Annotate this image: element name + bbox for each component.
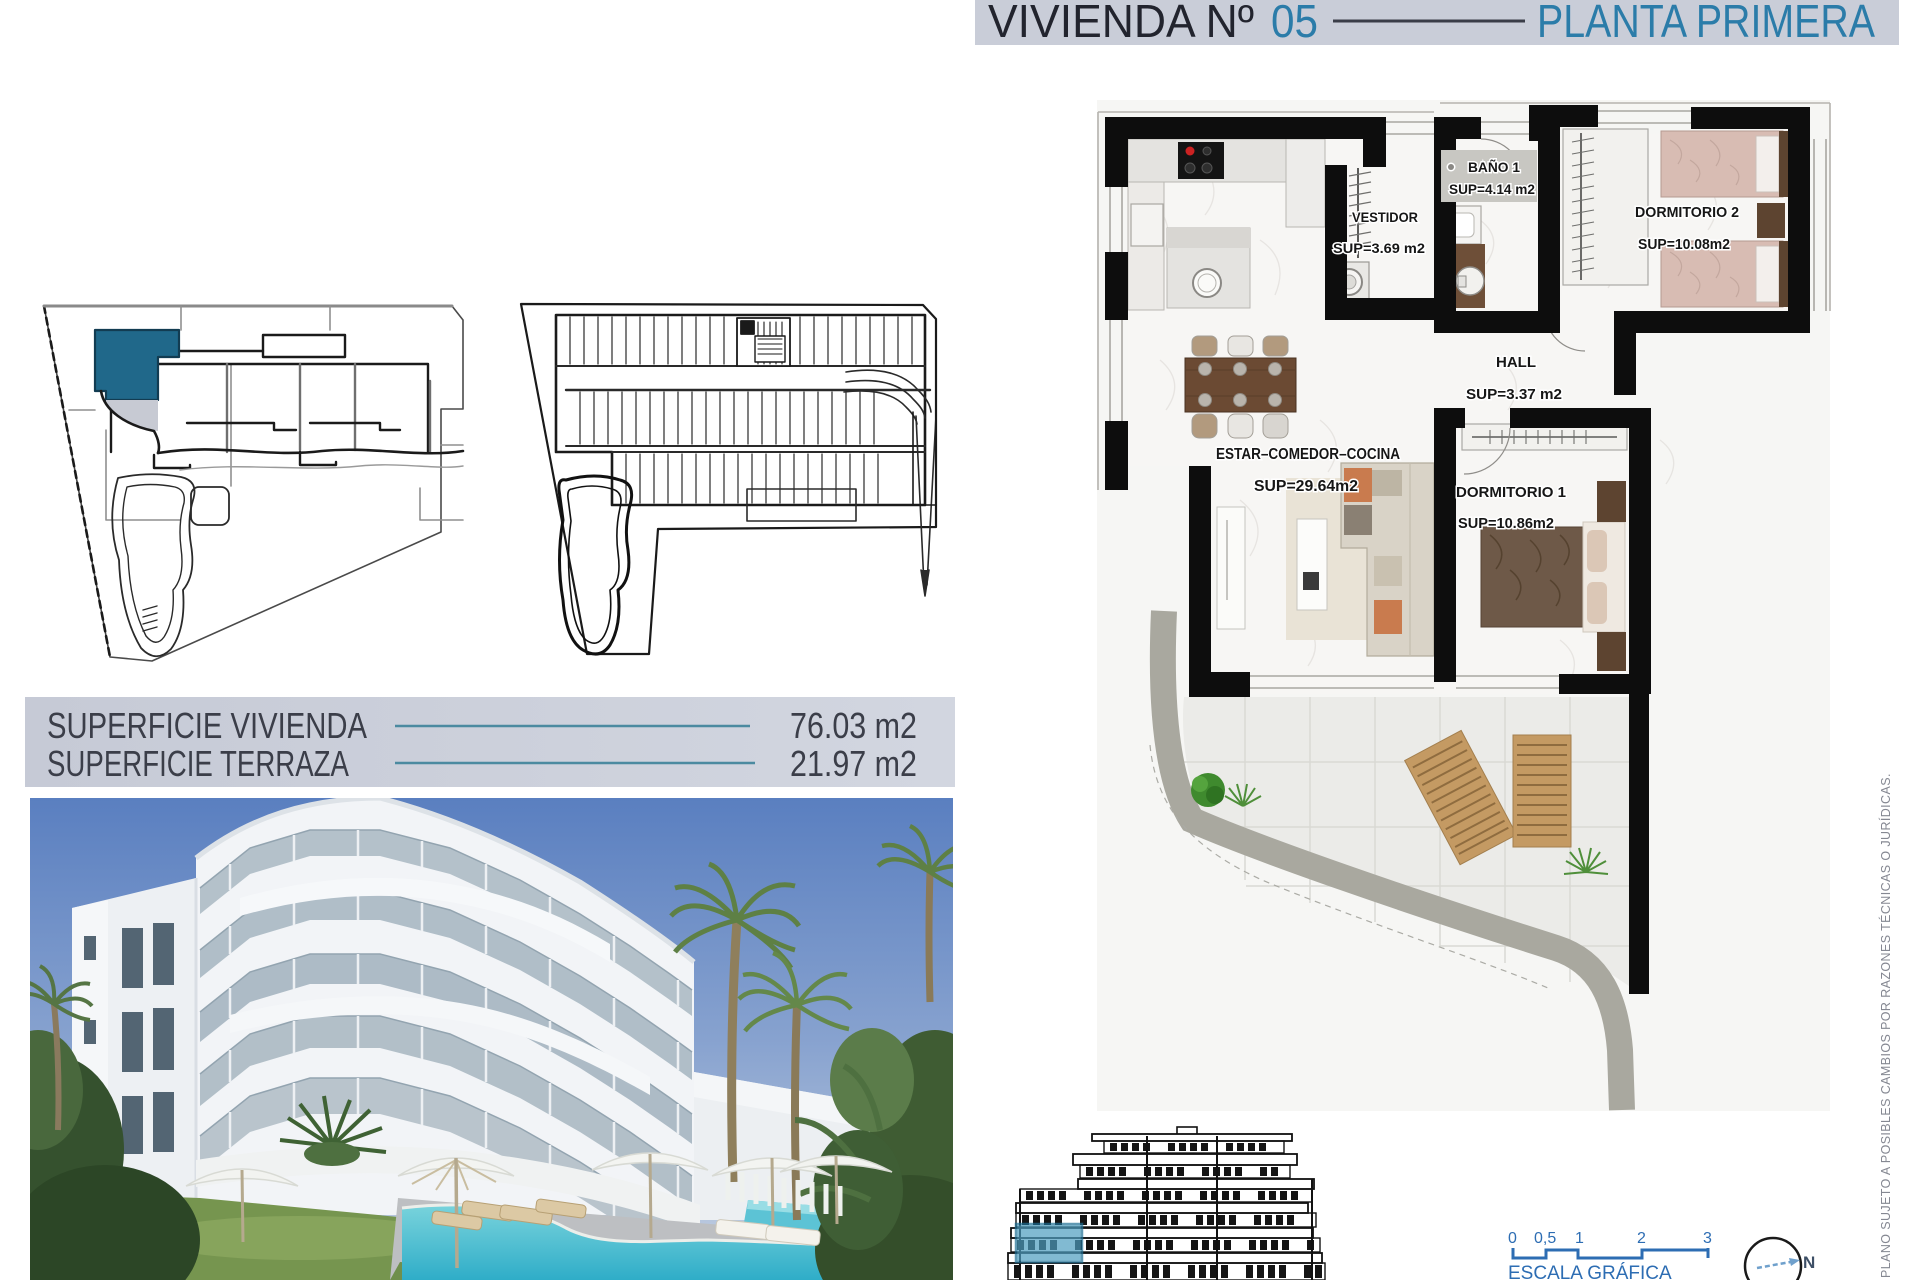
svg-text:HALL: HALL [1496,354,1536,371]
svg-text:2: 2 [1637,1230,1646,1247]
svg-text:SUPERFICIE VIVIENDA: SUPERFICIE VIVIENDA [47,705,367,746]
svg-text:05: 05 [1271,0,1318,47]
svg-text:PLANTA PRIMERA: PLANTA PRIMERA [1537,0,1875,47]
svg-text:3: 3 [1703,1230,1712,1247]
svg-text:DORMITORIO 2: DORMITORIO 2 [1635,204,1739,221]
svg-text:1: 1 [1575,1230,1584,1247]
svg-text:VESTIDOR: VESTIDOR [1352,209,1418,225]
svg-text:SUPERFICIE TERRAZA: SUPERFICIE TERRAZA [47,743,349,784]
svg-text:N: N [1803,1253,1815,1272]
svg-text:SUP=10.08m2: SUP=10.08m2 [1638,236,1730,253]
svg-text:DORMITORIO 1: DORMITORIO 1 [1456,484,1566,501]
svg-text:0: 0 [1508,1230,1517,1247]
svg-text:BAÑO 1: BAÑO 1 [1468,158,1520,175]
svg-text:ESCALA GRÁFICA: ESCALA GRÁFICA [1508,1263,1672,1280]
svg-text:VIVIENDA Nº: VIVIENDA Nº [988,0,1254,47]
svg-text:PLANO SUJETO A POSIBLES CAMBIO: PLANO SUJETO A POSIBLES CAMBIOS POR RAZO… [1878,773,1893,1278]
svg-text:76.03 m2: 76.03 m2 [790,705,917,746]
svg-text:SUP=3.37 m2: SUP=3.37 m2 [1466,386,1562,403]
svg-text:SUP=4.14 m2: SUP=4.14 m2 [1449,181,1535,197]
svg-text:0,5: 0,5 [1534,1230,1556,1247]
svg-text:ESTAR–COMEDOR–COCINA: ESTAR–COMEDOR–COCINA [1216,446,1400,463]
svg-text:SUP=3.69 m2: SUP=3.69 m2 [1333,240,1425,256]
svg-text:21.97 m2: 21.97 m2 [790,743,917,784]
svg-text:SUP=10.86m2: SUP=10.86m2 [1458,515,1554,532]
svg-text:SUP=29.64m2: SUP=29.64m2 [1254,478,1358,495]
